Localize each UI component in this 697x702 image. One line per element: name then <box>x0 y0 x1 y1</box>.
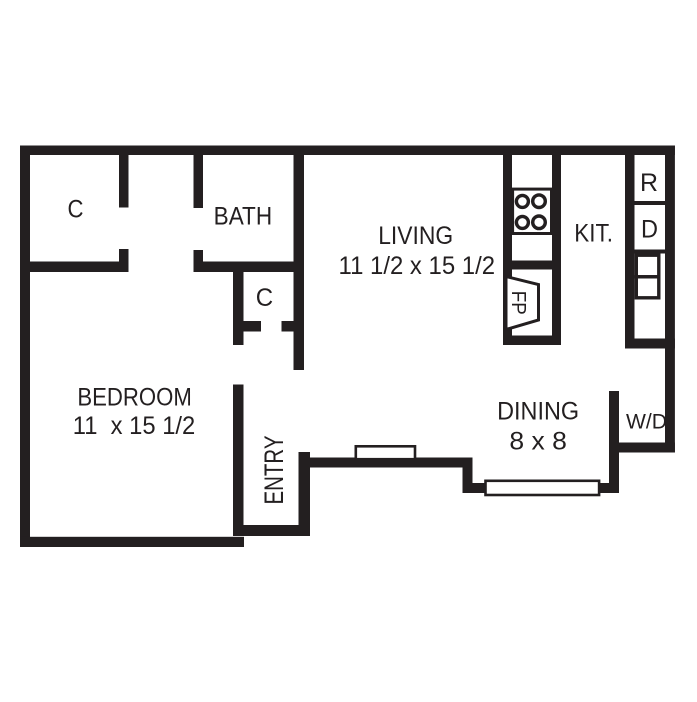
svg-text:D: D <box>641 215 658 243</box>
svg-text:8 x 8: 8 x 8 <box>509 427 567 455</box>
svg-text:BEDROOM: BEDROOM <box>77 384 192 412</box>
svg-text:11 x 15 1/2: 11 x 15 1/2 <box>73 412 196 440</box>
svg-text:C: C <box>256 284 273 312</box>
svg-text:FP: FP <box>507 291 529 315</box>
svg-text:LIVING: LIVING <box>378 222 453 250</box>
svg-text:KIT.: KIT. <box>574 220 613 248</box>
svg-text:11 1/2 x 15 1/2: 11 1/2 x 15 1/2 <box>339 252 496 280</box>
svg-text:BATH: BATH <box>214 202 273 230</box>
svg-text:W/D: W/D <box>626 410 667 434</box>
svg-text:ENTRY: ENTRY <box>259 435 289 504</box>
svg-text:C: C <box>68 196 84 224</box>
svg-text:R: R <box>640 169 658 197</box>
svg-text:DINING: DINING <box>497 398 579 426</box>
